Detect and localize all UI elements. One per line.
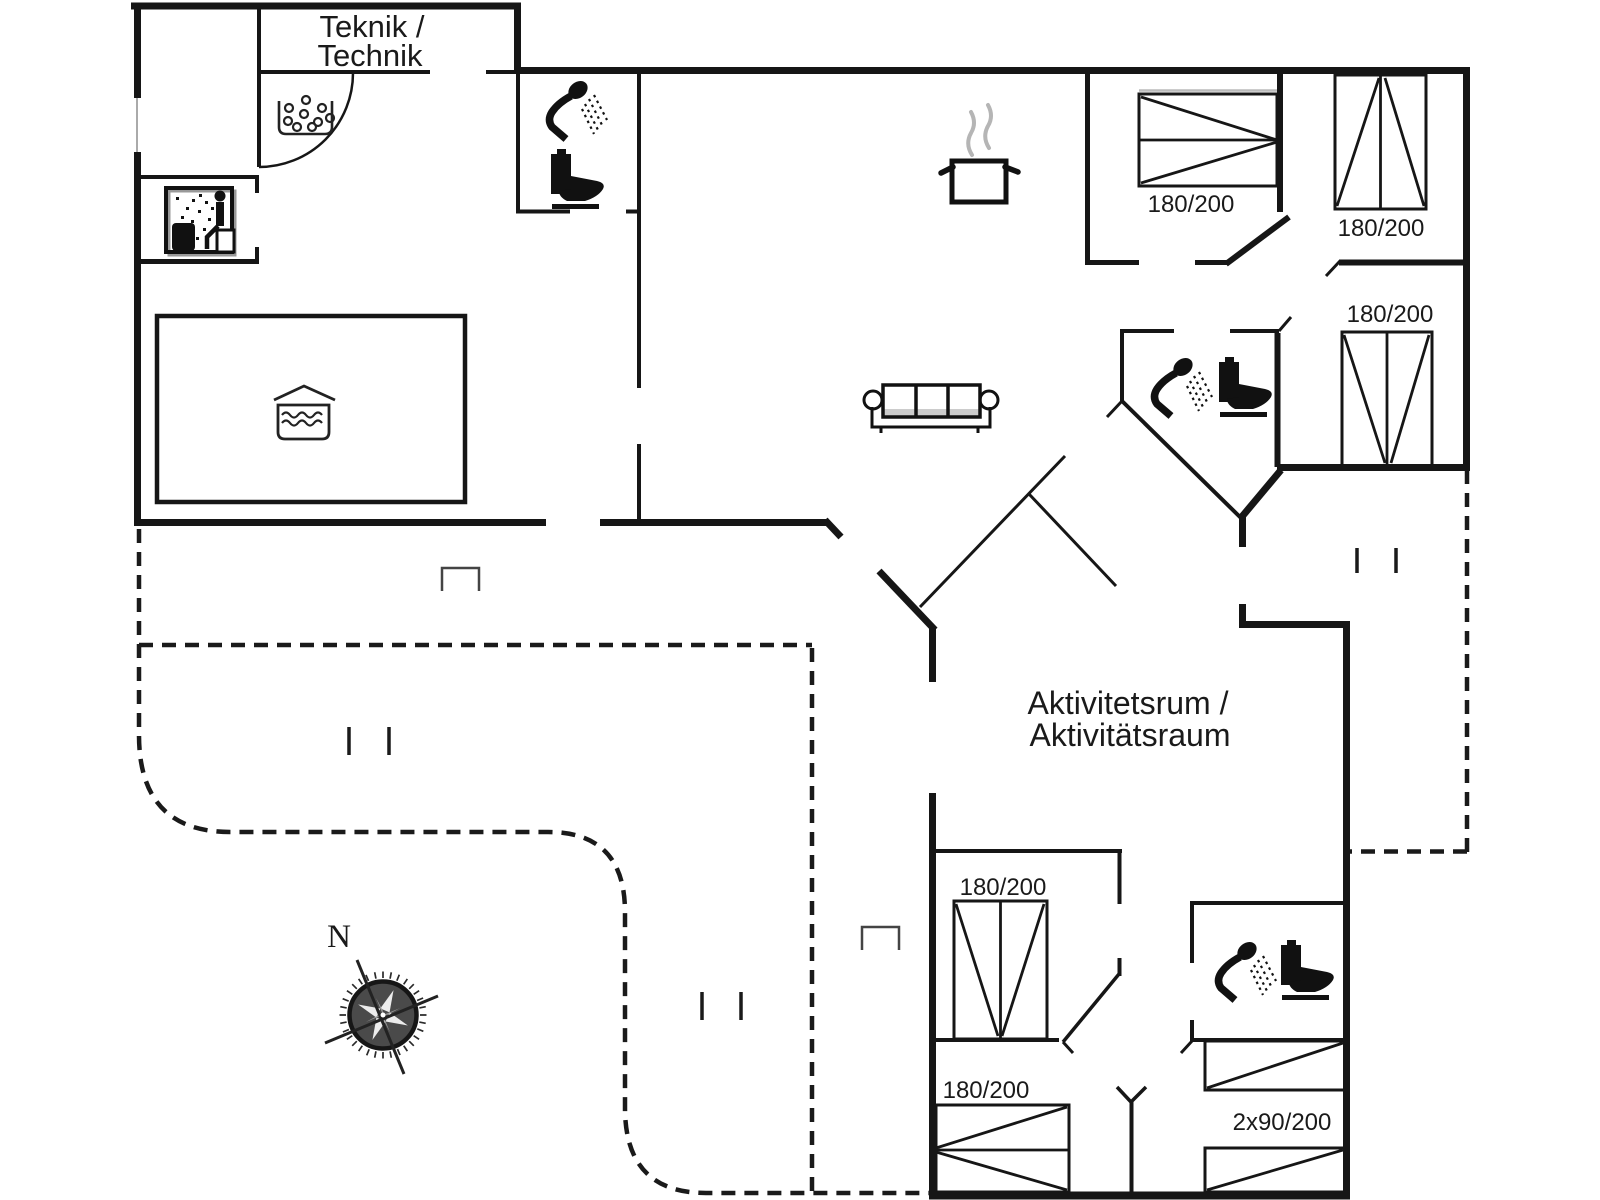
svg-text:180/200: 180/200 — [960, 874, 1047, 901]
svg-text:180/200: 180/200 — [943, 1077, 1030, 1104]
svg-text:Aktivitätsraum: Aktivitätsraum — [1030, 717, 1231, 753]
svg-text:N: N — [327, 919, 351, 955]
svg-text:2x90/200: 2x90/200 — [1233, 1109, 1332, 1136]
svg-text:180/200: 180/200 — [1347, 301, 1434, 328]
svg-text:180/200: 180/200 — [1338, 215, 1425, 242]
svg-text:Technik: Technik — [317, 38, 423, 73]
svg-text:Aktivitetsrum /: Aktivitetsrum / — [1028, 685, 1229, 721]
svg-text:180/200: 180/200 — [1148, 191, 1235, 218]
